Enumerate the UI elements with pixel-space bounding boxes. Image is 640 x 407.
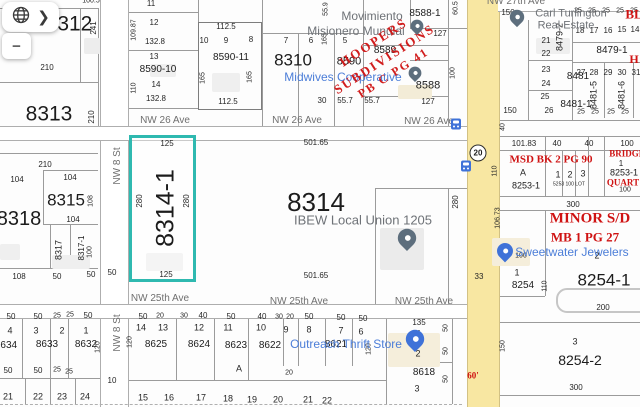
parcel-boundary-line: [127, 12, 198, 13]
dimension-label: 108: [12, 273, 25, 281]
dimension-label: 10: [256, 324, 266, 333]
dimension-label: 40: [258, 313, 267, 321]
parcel-boundary-line: [498, 136, 640, 137]
dimension-label: 2: [567, 171, 572, 180]
parcel-label: 8314-1: [154, 169, 179, 247]
road-nw-26-ave: [0, 126, 468, 141]
dimension-label: 25: [66, 312, 74, 319]
dimension-label: 60.5: [453, 1, 460, 15]
dimension-label: 210: [38, 161, 51, 169]
dimension-label: 33: [475, 273, 484, 281]
parcel-boundary-line: [498, 296, 545, 297]
pin-dot-icon: [403, 234, 411, 242]
dimension-label: 101.83: [512, 140, 536, 148]
dimension-label: 6: [358, 328, 363, 337]
red-annotation: BRIDGE: [609, 150, 640, 159]
dimension-label: 10: [108, 377, 117, 385]
map-canvas[interactable]: 8312831383158318831083148314-18254-18254…: [0, 0, 640, 407]
dimension-label: 50: [84, 312, 93, 320]
dimension-label: 3: [572, 338, 577, 347]
bus-stop-icon[interactable]: [461, 161, 471, 172]
dimension-label: 20: [273, 396, 283, 405]
parcel-boundary-line: [128, 380, 386, 381]
dimension-label: 25: [65, 369, 73, 376]
dimension-label: 112.5: [218, 98, 237, 106]
dimension-label: 127: [421, 98, 434, 106]
dimension-label: 25: [541, 93, 550, 101]
parcel-label: 8634: [0, 341, 17, 351]
dimension-label: 23: [542, 66, 551, 74]
dimension-label: A: [236, 365, 242, 374]
dimension-label: 13: [150, 53, 159, 61]
dimension-label: 132.8: [146, 95, 166, 103]
parcel-label: 8317: [55, 240, 64, 260]
dimension-label: 300: [569, 384, 582, 392]
dimension-label: 9: [224, 37, 228, 45]
parcel-label: 8624: [188, 340, 210, 350]
dimension-label: 100: [450, 67, 457, 79]
street-label: NW 26 Ave: [404, 117, 454, 127]
dimension-label: 50: [443, 324, 450, 332]
dimension-label: 50: [108, 269, 117, 277]
dimension-label: 30: [618, 69, 627, 77]
parcel-boundary-line: [528, 20, 529, 120]
dimension-label: 14: [152, 81, 161, 89]
dimension-label: 27: [577, 69, 586, 77]
dimension-label: 14: [631, 26, 640, 34]
dimension-label: 50: [227, 313, 236, 321]
dimension-label: 132.8: [145, 38, 165, 46]
parcel-boundary-line: [572, 42, 640, 43]
parcel-boundary-line: [498, 322, 640, 323]
dimension-label: 3: [414, 385, 419, 394]
dimension-label: 17: [196, 394, 206, 403]
street-label: NW 8 St: [113, 147, 123, 184]
dimension-label: 14: [136, 324, 146, 333]
dimension-label: 50: [53, 273, 62, 281]
parcel-boundary-line: [498, 120, 640, 121]
poi-label: Real Estate: [538, 21, 595, 32]
parcel-label: 8315: [47, 192, 85, 209]
parcel-boundary-line: [448, 0, 449, 126]
parcel-boundary-line: [604, 136, 605, 196]
red-annotation: MINOR S/D: [550, 212, 630, 227]
parcel-boundary-line: [262, 0, 263, 126]
dimension-label: 50: [305, 313, 314, 321]
dimension-label: 50: [337, 314, 346, 322]
dimension-label: 50: [443, 347, 450, 355]
dimension-label: 50: [139, 313, 148, 321]
parcel-label: 8481-6: [618, 81, 627, 109]
parcel-label: 8253-1: [512, 182, 540, 191]
block-boundary-dashed: [0, 404, 462, 405]
parcel-boundary-line: [498, 196, 640, 197]
dimension-label: 10: [200, 37, 209, 45]
street-label: NW 26 Ave: [140, 116, 190, 126]
dimension-label: 24: [542, 80, 551, 88]
parcel-label: 8317-1: [78, 236, 86, 261]
dimension-label: 112.5: [216, 23, 235, 31]
parcel-boundary-line: [176, 316, 177, 380]
dimension-label: 6: [309, 37, 313, 45]
red-annotation: MB 1 PG 27: [551, 231, 619, 244]
dimension-label: 104: [10, 176, 23, 184]
dimension-label: 110: [131, 82, 138, 93]
expand-toolbar-chevron-icon[interactable]: ❯: [37, 8, 50, 26]
dimension-label: 19: [247, 396, 257, 405]
dimension-label: 50: [4, 367, 13, 375]
dimension-label: 29: [604, 69, 613, 77]
parcel-label: 8622: [259, 341, 281, 351]
dimension-label: 50: [359, 315, 368, 323]
pin-dot-icon: [414, 23, 420, 29]
dimension-label: 120: [95, 341, 102, 353]
layers-globe-icon[interactable]: [11, 5, 31, 30]
parcel-label: 8310: [274, 52, 312, 69]
dimension-label: 241: [90, 21, 98, 34]
dimension-label: 21: [303, 396, 313, 405]
parcel-boundary-line: [452, 316, 453, 404]
dimension-label: 2: [59, 327, 64, 336]
building-footprint: [212, 73, 240, 92]
zoom-out-button[interactable]: −: [2, 33, 31, 59]
dimension-label: 30: [275, 314, 283, 321]
dimension-label: 11: [147, 0, 155, 8]
dimension-label: 40: [199, 312, 208, 320]
parcel-boundary-line: [22, 316, 23, 378]
dimension-label: 11: [223, 324, 232, 333]
parcel-label: 8590-10: [140, 65, 177, 75]
dimension-label: 16: [164, 394, 174, 403]
parcel-boundary-line: [375, 188, 376, 304]
dimension-label: 2: [415, 350, 420, 359]
dimension-label: 30: [180, 313, 188, 320]
street-label: NW 25th Ave: [395, 297, 453, 307]
street-label: NW 27th Ave: [487, 0, 545, 7]
dimension-label: 21: [542, 37, 551, 45]
dimension-label: 25: [607, 109, 615, 116]
parcel-label: 8588: [416, 81, 440, 92]
dimension-label: 7: [338, 327, 343, 336]
pin-dot-icon: [514, 14, 520, 20]
dimension-label: 25: [621, 109, 629, 116]
dimension-label: 18: [223, 395, 233, 404]
parcel-boundary-line: [0, 153, 98, 154]
dimension-label: 15: [618, 26, 627, 34]
dimension-label: 20: [285, 370, 293, 377]
parcel-boundary-line: [528, 90, 572, 91]
dimension-label: 110: [542, 280, 549, 291]
dimension-label: 300: [566, 201, 579, 209]
parcel-boundary-line: [43, 170, 44, 224]
dimension-label: 150: [503, 107, 516, 115]
parcel-label: 8618: [413, 368, 435, 378]
parcel-boundary-line: [214, 316, 215, 380]
dimension-label: 13: [158, 324, 168, 333]
dimension-label: 40: [553, 140, 562, 148]
pin-dot-icon: [501, 247, 508, 254]
parcel-boundary-line: [448, 188, 449, 304]
poi-label: Carl Turlington: [535, 9, 607, 20]
dimension-label: 135: [412, 319, 425, 327]
red-annotation: H: [629, 53, 638, 65]
dimension-label: 501.65: [304, 272, 328, 280]
dimension-label: 22: [33, 393, 43, 402]
parcel-boundary-line: [498, 395, 640, 396]
dimension-label: 125: [160, 140, 173, 148]
dimension-label: 25: [577, 109, 585, 116]
dimension-label: 30: [318, 97, 327, 105]
red-annotation: 60': [467, 372, 479, 381]
map-toolbar[interactable]: ❯: [2, 2, 59, 32]
poi-label: Sweetwater Jewelers: [515, 246, 628, 258]
dimension-label: 150: [500, 340, 507, 352]
parcel-boundary-line: [386, 316, 387, 404]
parcel-label: 8253-1: [610, 169, 638, 178]
dimension-label: 3: [580, 170, 585, 179]
dimension-label: 20: [286, 314, 294, 321]
parcel-boundary-line: [0, 82, 98, 83]
dimension-label: 4: [7, 327, 12, 336]
dimension-label: 1: [555, 171, 560, 180]
parcel-boundary-line: [98, 8, 99, 127]
parcel-label: 8318: [0, 209, 41, 229]
dimension-label: 12: [150, 19, 159, 27]
dimension-label: 106.73: [495, 207, 502, 228]
parcel-label: 8623: [225, 341, 247, 351]
dimension-label: 24: [80, 393, 90, 402]
dimension-label: 50: [7, 313, 16, 321]
parcel-boundary-line: [25, 378, 26, 404]
parcel-boundary-line: [50, 378, 51, 404]
pin-dot-icon: [412, 70, 418, 76]
dimension-label: 280: [136, 194, 144, 207]
parcel-label: 8254-1: [578, 272, 631, 289]
dimension-label: 210: [88, 110, 96, 123]
dimension-label: 104: [66, 216, 79, 224]
dimension-label: 21: [3, 393, 13, 402]
dimension-label: 165: [247, 71, 254, 83]
dimension-label: 50: [34, 367, 43, 375]
dimension-label: 100: [87, 246, 94, 258]
dimension-label: 12: [194, 324, 204, 333]
parcel-label: 8314: [287, 189, 345, 215]
dimension-label: 110: [492, 165, 499, 176]
dimension-label: 40: [585, 140, 594, 148]
dimension-label: 108: [88, 195, 95, 207]
building-footprint: [0, 244, 20, 260]
red-annotation: QUART: [607, 179, 639, 188]
dimension-label: 50: [443, 375, 450, 383]
parcel-label: 8625: [145, 340, 167, 350]
dimension-label: 120: [127, 336, 134, 348]
parcel-boundary-line: [198, 0, 199, 22]
parcel-boundary-line: [75, 378, 76, 404]
building-footprint: [84, 38, 100, 54]
parcel-label: 8481-1: [560, 100, 591, 110]
dimension-label: 22: [542, 50, 551, 58]
dimension-label: 31: [632, 69, 640, 77]
parcel-boundary-line: [127, 50, 198, 51]
parcel-boundary-line: [375, 188, 467, 189]
dimension-label: 100: [620, 140, 633, 148]
dimension-label: 100.5: [82, 0, 100, 5]
parcel-boundary-line: [248, 316, 249, 380]
dimension-label: 280: [452, 195, 460, 208]
parcel-label: 8254: [512, 281, 534, 291]
pin-dot-icon: [411, 335, 419, 343]
parcel-label: 8313: [26, 104, 73, 125]
dimension-label: 25: [53, 367, 61, 374]
parcel-label: 8481-5: [590, 81, 599, 109]
parcel-boundary-line: [43, 170, 98, 171]
dimension-label: 25: [616, 8, 624, 15]
dimension-label: 22: [322, 397, 332, 406]
dimension-label: 40: [500, 123, 507, 131]
parcel-label: 8590-11: [213, 53, 249, 63]
poi-label: Outreach Thrift Store: [290, 338, 402, 350]
parcel-boundary-line: [545, 136, 546, 196]
dimension-label: 8: [306, 326, 311, 335]
dimension-label: 501.65: [304, 139, 328, 147]
dimension-label: 3: [33, 327, 38, 336]
dimension-label: 109.87: [131, 19, 138, 40]
parcel-label: 8254-2: [558, 353, 602, 367]
parcel-boundary-line: [528, 60, 572, 61]
parcel-boundary-line: [50, 224, 51, 268]
dimension-label: 1: [514, 269, 519, 278]
dimension-label: 25: [53, 313, 61, 320]
parcel-label: 8479-1: [596, 46, 627, 56]
dimension-label: 200: [596, 304, 609, 312]
dimension-label: 23: [57, 393, 67, 402]
red-annotation: BL: [625, 8, 640, 21]
dimension-label: 25: [591, 109, 599, 116]
dimension-label: 165: [200, 72, 207, 84]
dimension-label: 9: [283, 326, 288, 335]
dimension-label: 5253 100 LOT: [553, 183, 585, 188]
dimension-label: 210: [40, 64, 53, 72]
bus-stop-icon[interactable]: [451, 119, 461, 130]
parcel-label: 8633: [36, 340, 58, 350]
dimension-label: 15: [138, 394, 148, 403]
dimension-label: 104: [63, 174, 76, 182]
street-label: NW 26 Ave: [272, 116, 322, 126]
dimension-label: 55.9: [323, 2, 330, 16]
route-20-shield-icon: 20: [470, 145, 487, 162]
street-label: NW 8 St: [113, 314, 123, 351]
road-route-20: [467, 0, 500, 407]
dimension-label: 125: [159, 271, 172, 279]
dimension-label: 8: [249, 36, 253, 44]
dimension-label: 28: [590, 69, 599, 77]
street-label: NW 25th Ave: [270, 297, 328, 307]
red-annotation: MSD BK 2 PG 90: [509, 155, 592, 166]
dimension-label: 26: [545, 107, 554, 115]
dimension-label: 100: [619, 187, 631, 194]
dimension-label: 50: [87, 271, 96, 279]
dimension-label: 16: [604, 27, 613, 35]
dimension-label: 1: [619, 160, 623, 168]
dimension-label: A: [520, 169, 526, 178]
dimension-label: 20: [156, 313, 164, 320]
poi-label: IBEW Local Union 1205: [294, 214, 432, 227]
dimension-label: 280: [183, 194, 191, 207]
dimension-label: 7: [284, 37, 288, 45]
parcel-boundary-line: [283, 316, 284, 366]
dimension-label: 5: [343, 37, 347, 45]
parcel-boundary-line: [127, 108, 198, 109]
dimension-label: 50: [34, 313, 43, 321]
dimension-label: 1: [83, 327, 88, 336]
street-label: NW 25th Ave: [131, 294, 189, 304]
